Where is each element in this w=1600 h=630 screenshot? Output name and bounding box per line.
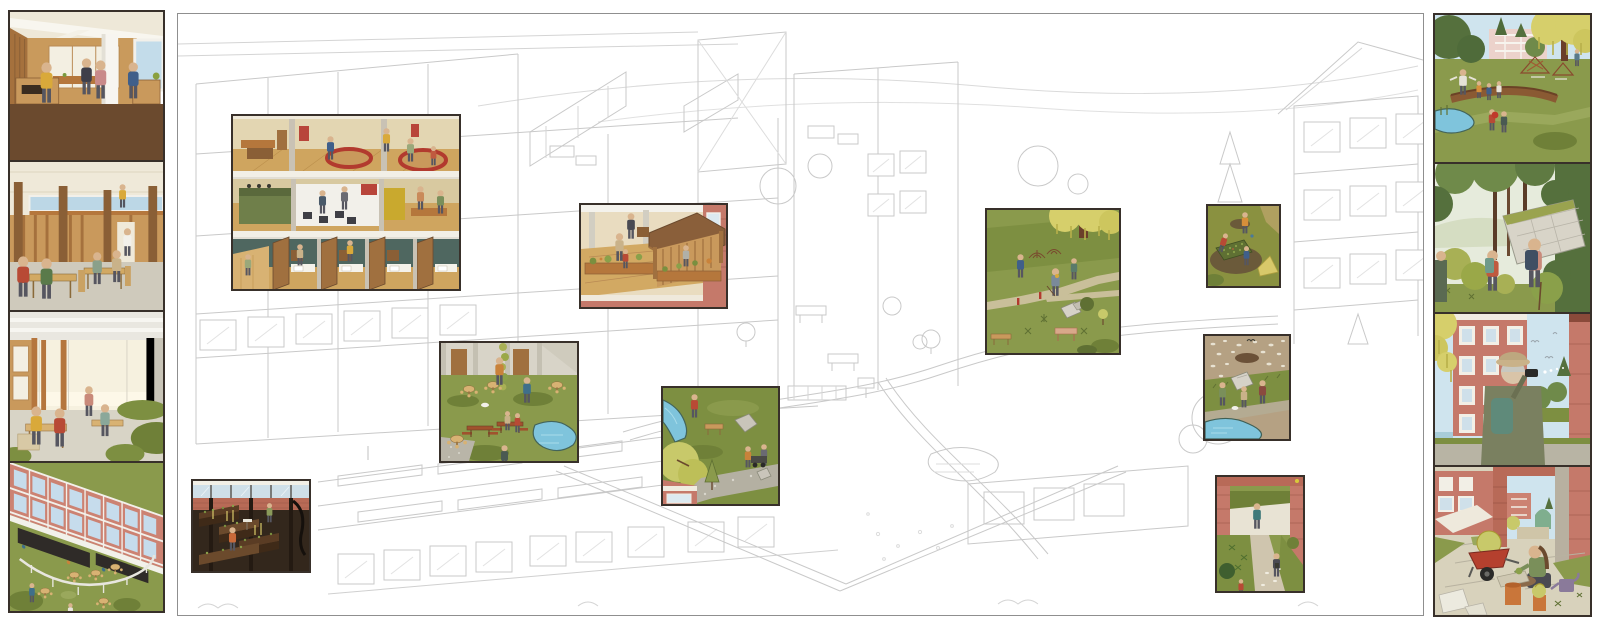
planting-courtyard-illustration bbox=[1435, 467, 1590, 615]
sunken-lounge bbox=[400, 150, 446, 170]
green-arch bbox=[1535, 509, 1551, 529]
forest-ruin-illustration bbox=[1435, 164, 1590, 312]
dog bbox=[1232, 406, 1239, 410]
backpack bbox=[1491, 398, 1513, 434]
center-board bbox=[177, 13, 1424, 616]
inset-park-willow bbox=[985, 208, 1121, 355]
right-panel-park-play bbox=[1433, 13, 1592, 164]
left-panel-dining bbox=[8, 160, 165, 312]
left-panel-study bbox=[8, 310, 165, 463]
right-panel-forest-ruin bbox=[1433, 162, 1592, 314]
inset-courtyard-pond bbox=[439, 341, 579, 463]
courtyard-aerial-illustration bbox=[10, 463, 163, 611]
kitchen-illustration bbox=[10, 12, 163, 160]
dog bbox=[481, 403, 489, 407]
birdwatching-illustration bbox=[1435, 314, 1590, 465]
inset-pebble-pond bbox=[1203, 334, 1291, 441]
sunken-lounge bbox=[327, 149, 371, 167]
right-panel-birdwatching bbox=[1433, 312, 1592, 467]
plant-pot bbox=[1505, 585, 1521, 605]
inset-building-section bbox=[231, 114, 461, 291]
illustration-board: { "artwork": { "kind": "architectural il… bbox=[0, 0, 1600, 630]
bird-shadow-patch bbox=[1235, 353, 1259, 363]
inset-meadow-stream bbox=[661, 386, 780, 506]
left-building bbox=[1435, 471, 1493, 535]
right-panel-planting-courtyard bbox=[1433, 465, 1592, 617]
dining-illustration bbox=[10, 162, 163, 310]
inset-terrace-gazebo bbox=[579, 203, 728, 309]
yellow-screen bbox=[381, 188, 405, 220]
left-panel-courtyard bbox=[8, 461, 165, 613]
inset-planting-beds bbox=[1206, 204, 1281, 288]
study-illustration bbox=[10, 312, 163, 461]
park-play-illustration bbox=[1435, 15, 1590, 162]
inset-brick-gateway bbox=[1215, 475, 1305, 593]
left-panel-kitchen bbox=[8, 10, 165, 162]
binoculars bbox=[1525, 369, 1538, 377]
inset-growing-terraces bbox=[191, 479, 311, 573]
